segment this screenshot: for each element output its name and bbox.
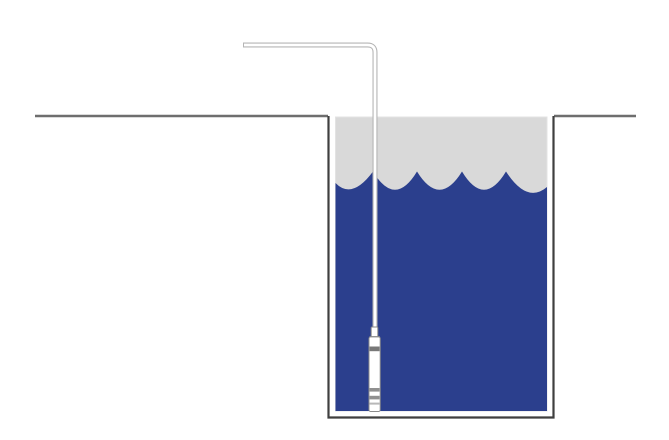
liquid-wave-surface: [336, 172, 548, 412]
tank: [329, 116, 554, 418]
sensor-cap: [371, 327, 378, 337]
sensor-band-lower-1: [370, 388, 380, 392]
submersible-sensor-probe: [369, 327, 380, 412]
diagram-stage: [0, 0, 669, 440]
sensor-band-lower-2: [370, 396, 380, 400]
level-sensor-tank-diagram: [0, 0, 669, 440]
sensor-band-upper: [370, 347, 380, 352]
sensor-band-lower-3: [370, 403, 380, 405]
